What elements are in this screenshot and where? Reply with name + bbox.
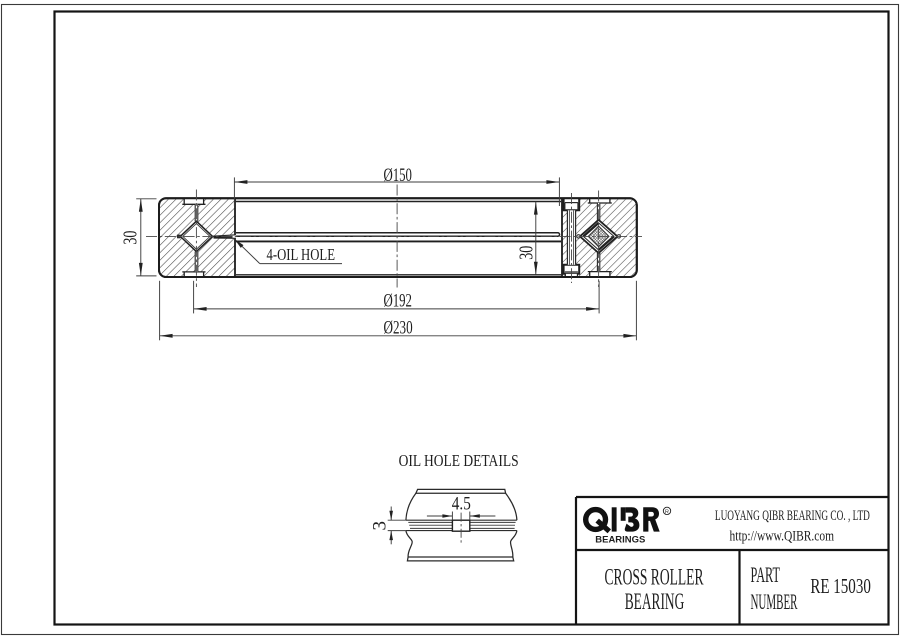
svg-text:4.5: 4.5 <box>452 494 471 515</box>
svg-text:PART: PART <box>751 562 781 587</box>
svg-text:Ø192: Ø192 <box>383 291 412 312</box>
svg-text:BEARINGS: BEARINGS <box>595 534 645 544</box>
svg-text:OIL HOLE DETAILS: OIL HOLE DETAILS <box>399 451 519 470</box>
svg-text:4-OIL HOLE: 4-OIL HOLE <box>267 245 336 264</box>
svg-text:30: 30 <box>121 231 142 245</box>
svg-text:CROSS ROLLER: CROSS ROLLER <box>605 564 704 589</box>
svg-text:RE 15030: RE 15030 <box>810 574 871 598</box>
svg-text:Ø230: Ø230 <box>384 318 413 339</box>
svg-text:http://www.QIBR.com: http://www.QIBR.com <box>730 529 835 545</box>
svg-text:LUOYANG QIBR BEARING CO. , LTD: LUOYANG QIBR BEARING CO. , LTD <box>715 508 870 524</box>
svg-text:30: 30 <box>516 246 537 260</box>
svg-text:3: 3 <box>369 521 390 531</box>
svg-text:R: R <box>665 509 669 515</box>
svg-text:BEARING: BEARING <box>625 589 685 614</box>
svg-text:NUMBER: NUMBER <box>751 589 798 614</box>
svg-text:Ø150: Ø150 <box>383 165 412 186</box>
